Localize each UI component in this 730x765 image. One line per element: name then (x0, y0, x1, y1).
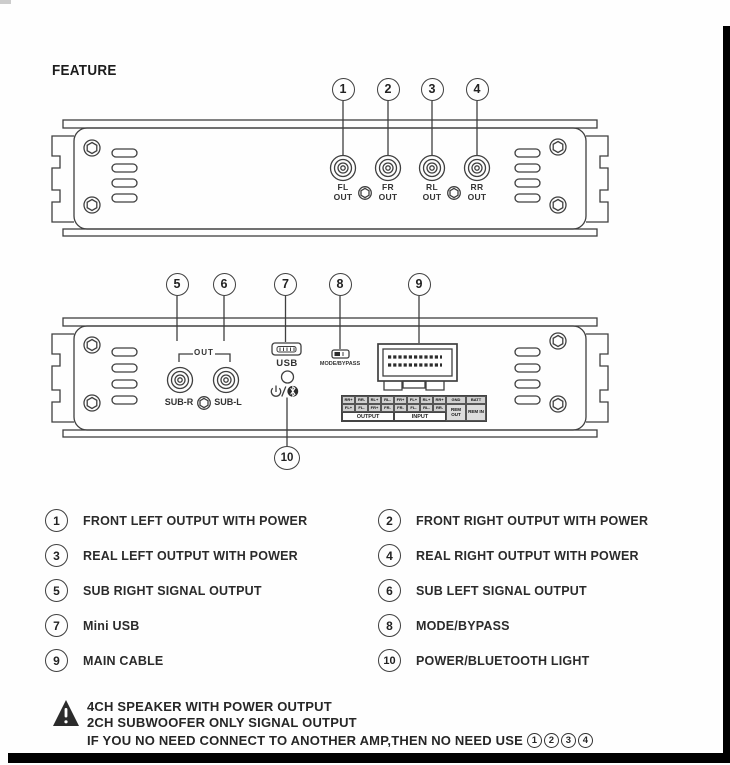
rca-jack-sub-r (168, 368, 193, 393)
terminal-cell: RR- (433, 404, 446, 412)
terminal-cell: FR- (394, 404, 407, 412)
legend-num-3: 3 (45, 544, 68, 567)
legend-item-1: 1 FRONT LEFT OUTPUT WITH POWER (45, 509, 378, 532)
label-rr-out: RROUT (457, 183, 497, 202)
terminal-cell: RR+ (342, 396, 355, 404)
terminal-cell-rem-out: REM OUT (446, 404, 466, 421)
terminal-cell: FR- (381, 404, 394, 412)
legend-label-1: FRONT LEFT OUTPUT WITH POWER (83, 514, 307, 528)
warning-refs: 1 2 3 4 (527, 733, 593, 748)
legend-num-1: 1 (45, 509, 68, 532)
manual-page: FEATURE (0, 0, 730, 765)
callout-10: 10 (274, 446, 300, 470)
warning-line-3: IF YOU NO NEED CONNECT TO ANOTHER AMP,TH… (87, 733, 593, 748)
legend-label-3: REAL LEFT OUTPUT WITH POWER (83, 549, 298, 563)
terminal-cell: FL- (407, 404, 420, 412)
usb-label: USB (271, 358, 303, 369)
terminal-cell: FL- (355, 404, 368, 412)
main-cable-connector (378, 344, 457, 390)
rca-jack-rl-out (420, 156, 445, 181)
terminal-band-output: OUTPUT (342, 412, 394, 421)
legend-item-3: 3 REAL LEFT OUTPUT WITH POWER (45, 544, 378, 567)
callout-1: 1 (332, 78, 355, 101)
warning-line-1: 4CH SPEAKER WITH POWER OUTPUT (87, 699, 332, 714)
legend-item-2: 2 FRONT RIGHT OUTPUT WITH POWER (378, 509, 700, 532)
legend-num-6: 6 (378, 579, 401, 602)
legend-item-9: 9 MAIN CABLE (45, 649, 378, 672)
heatsink-fin-right (586, 334, 608, 422)
legend-label-4: REAL RIGHT OUTPUT WITH POWER (416, 549, 639, 563)
callout-8: 8 (329, 273, 352, 296)
legend-item-8: 8 MODE/BYPASS (378, 614, 700, 637)
slash-icon (282, 387, 286, 397)
panel-top-outline (52, 120, 608, 236)
legend-item-5: 5 SUB RIGHT SIGNAL OUTPUT (45, 579, 378, 602)
warning-line-2: 2CH SUBWOOFER ONLY SIGNAL OUTPUT (87, 715, 357, 730)
heatsink-fin-right (586, 136, 608, 222)
panel-bottom-outline (52, 318, 608, 437)
terminal-cell: FR+ (394, 396, 407, 404)
terminal-cell: FL+ (407, 396, 420, 404)
legend-num-8: 8 (378, 614, 401, 637)
terminal-cell: RL+ (420, 396, 433, 404)
power-icon (271, 386, 280, 397)
legend-label-5: SUB RIGHT SIGNAL OUTPUT (83, 584, 262, 598)
legend-item-6: 6 SUB LEFT SIGNAL OUTPUT (378, 579, 700, 602)
legend-label-9: MAIN CABLE (83, 654, 163, 668)
warning-triangle-icon (53, 700, 79, 726)
callout-9: 9 (408, 273, 431, 296)
terminal-cell: FR+ (368, 404, 381, 412)
sub-l-label: SUB-L (206, 397, 250, 407)
label-fr-out: FROUT (368, 183, 408, 202)
bluetooth-icon (287, 386, 298, 397)
legend-item-7: 7 Mini USB (45, 614, 378, 637)
callout-3: 3 (421, 78, 444, 101)
legend-label-2: FRONT RIGHT OUTPUT WITH POWER (416, 514, 648, 528)
legend: 1 FRONT LEFT OUTPUT WITH POWER 2 FRONT R… (45, 503, 700, 678)
legend-num-9: 9 (45, 649, 68, 672)
legend-item-10: 10 POWER/BLUETOOTH LIGHT (378, 649, 700, 672)
legend-num-5: 5 (45, 579, 68, 602)
callout-4: 4 (466, 78, 489, 101)
legend-num-10: 10 (378, 649, 401, 672)
legend-num-2: 2 (378, 509, 401, 532)
callout-6: 6 (213, 273, 236, 296)
terminal-label-strip: RR+ RR- RL+ RL- FR+ FL+ RL+ RR+ GND BATT… (341, 395, 487, 422)
legend-label-8: MODE/BYPASS (416, 619, 510, 633)
legend-label-7: Mini USB (83, 619, 139, 633)
terminal-cell: RL- (381, 396, 394, 404)
terminal-cell-rem-in: REM IN (466, 404, 486, 421)
sub-r-label: SUB-R (157, 397, 201, 407)
heatsink-fin-left (52, 136, 74, 222)
mini-usb-port (272, 343, 301, 355)
terminal-cell-gnd: GND (446, 396, 466, 404)
label-rl-out: RLOUT (412, 183, 452, 202)
mode-bypass-switch (332, 350, 349, 358)
callout-7: 7 (274, 273, 297, 296)
legend-label-10: POWER/BLUETOOTH LIGHT (416, 654, 589, 668)
legend-num-7: 7 (45, 614, 68, 637)
mode-bypass-label: MODE/BYPASS (310, 361, 370, 367)
ref-circle-3: 3 (561, 733, 576, 748)
out-bracket-label: OUT (192, 348, 216, 357)
legend-label-6: SUB LEFT SIGNAL OUTPUT (416, 584, 587, 598)
ref-circle-1: 1 (527, 733, 542, 748)
terminal-cell-batt: BATT (466, 396, 486, 404)
rca-jack-fl-out (331, 156, 356, 181)
heatsink-fin-left (52, 334, 74, 422)
callout-5: 5 (166, 273, 189, 296)
rca-jack-sub-l (214, 368, 239, 393)
terminal-cell: RR+ (433, 396, 446, 404)
terminal-cell: RR- (355, 396, 368, 404)
terminal-band-input: INPUT (394, 412, 446, 421)
ref-circle-2: 2 (544, 733, 559, 748)
terminal-cell: RL- (420, 404, 433, 412)
legend-num-4: 4 (378, 544, 401, 567)
rca-jack-fr-out (376, 156, 401, 181)
rca-jack-rr-out (465, 156, 490, 181)
power-bluetooth-led (282, 371, 294, 383)
terminal-cell: FL+ (342, 404, 355, 412)
label-fl-out: FLOUT (323, 183, 363, 202)
callout-2: 2 (377, 78, 400, 101)
legend-item-4: 4 REAL RIGHT OUTPUT WITH POWER (378, 544, 700, 567)
ref-circle-4: 4 (578, 733, 593, 748)
terminal-cell: RL+ (368, 396, 381, 404)
warning-line-3-text: IF YOU NO NEED CONNECT TO ANOTHER AMP,TH… (87, 733, 523, 748)
